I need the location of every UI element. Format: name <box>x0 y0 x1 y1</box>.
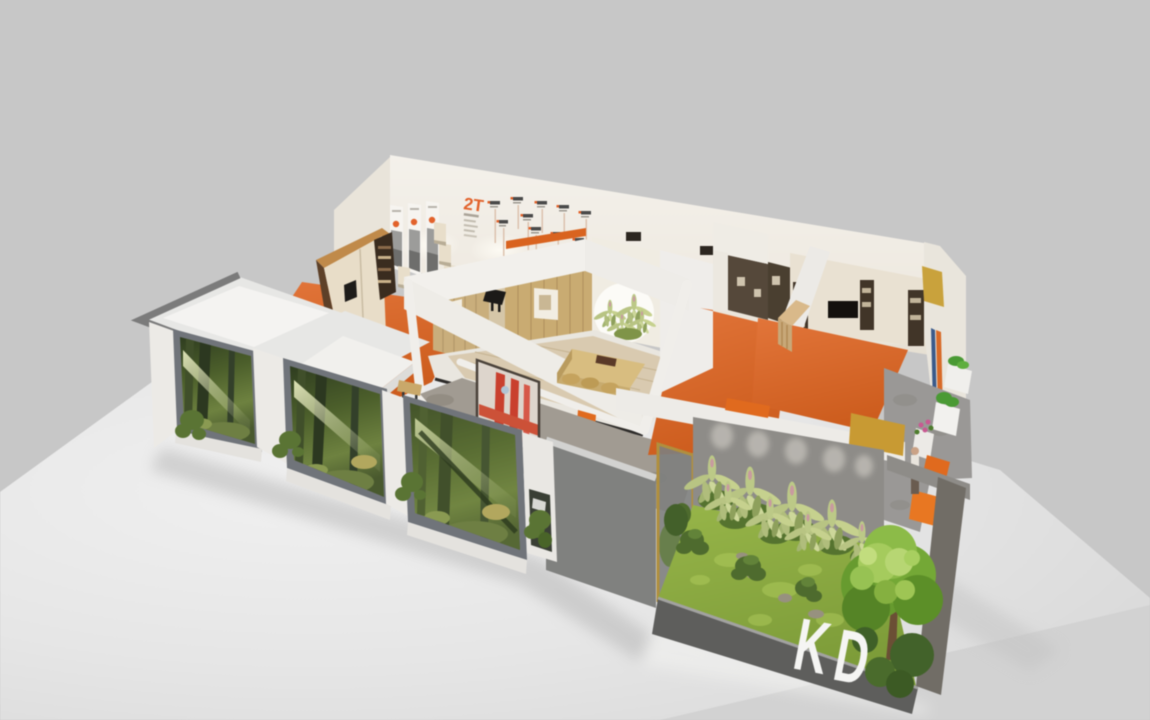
svg-text:2T: 2T <box>462 194 485 216</box>
